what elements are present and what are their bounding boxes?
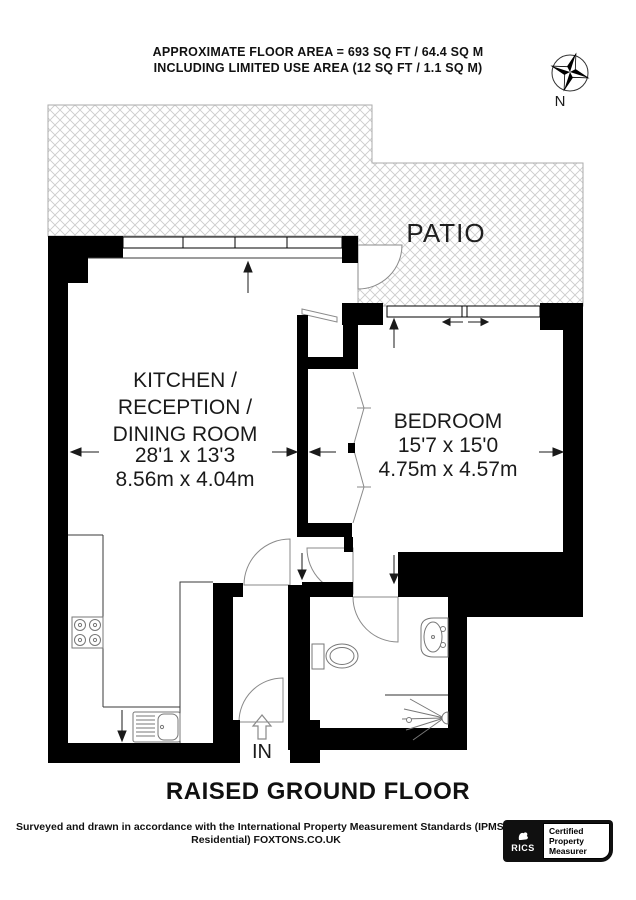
basin-tap <box>441 643 446 648</box>
bedroom-window <box>387 306 540 317</box>
dim-arrow-head <box>390 574 398 583</box>
patio-hatch <box>48 105 583 306</box>
footer-line1: Surveyed and drawn in accordance with th… <box>0 821 532 834</box>
kitchen-window <box>123 237 342 248</box>
bedroom-dims-metric: 4.75m x 4.57m <box>379 458 518 481</box>
rics-badge: RICS Certified Property Measurer <box>503 820 613 862</box>
wall-segment <box>297 315 308 537</box>
dim-arrow-head <box>553 448 563 456</box>
shower-drain <box>407 718 412 723</box>
rics-badge-left: RICS <box>503 820 543 862</box>
kitchen-label-line3: DINING ROOM <box>113 423 258 446</box>
basin-dot <box>432 636 435 639</box>
dim-arrow-head <box>71 448 81 456</box>
bifold-ticks <box>357 408 371 487</box>
wall-segment <box>563 310 583 552</box>
footer-disclaimer: Surveyed and drawn in accordance with th… <box>0 821 532 847</box>
floorplan-page: APPROXIMATE FLOOR AREA = 693 SQ FT / 64.… <box>0 0 636 900</box>
rics-org-label: RICS <box>511 843 535 853</box>
kitchen-dims-metric: 8.56m x 4.04m <box>116 468 255 491</box>
kitchen-fixtures <box>72 617 180 742</box>
toilet-cistern <box>312 644 324 669</box>
wall-segment <box>297 523 352 537</box>
basin-tap <box>441 627 446 632</box>
wall-segment <box>398 552 583 597</box>
rics-cert-line3: Measurer <box>549 846 609 856</box>
wall-segment <box>344 537 353 552</box>
bedroom-dims-imperial: 15'7 x 15'0 <box>398 434 498 457</box>
dim-arrow-head <box>310 448 320 456</box>
dim-arrow-head <box>298 570 306 579</box>
wall-segment <box>448 597 467 745</box>
kitchen-hall-door-arc <box>244 539 290 585</box>
slide-arrow-head <box>481 319 488 326</box>
floor-title: RAISED GROUND FLOOR <box>0 778 636 806</box>
wall-segment <box>465 597 583 617</box>
cabinet-outline <box>180 582 213 743</box>
wall-segment <box>213 583 233 743</box>
wall-segment <box>342 236 358 263</box>
dim-arrow-head <box>287 448 297 456</box>
toilet-bowl-inner <box>330 648 354 665</box>
sink-tap-dot <box>160 725 163 728</box>
dim-arrow-head <box>118 731 126 741</box>
hob-burner-dot <box>78 623 81 626</box>
entry-label: IN <box>252 741 272 763</box>
kitchen-label-line1: KITCHEN / <box>133 369 237 392</box>
dim-arrow-head <box>390 319 398 329</box>
hob-burner-dot <box>78 638 81 641</box>
bifold-door <box>348 372 371 523</box>
rics-lion-icon <box>516 829 531 842</box>
footer-line2: Residential) FOXTONS.CO.UK <box>0 834 532 847</box>
patio-label: PATIO <box>406 218 485 248</box>
wall-segment <box>48 743 233 763</box>
hob-burner-dot <box>93 623 96 626</box>
wall-segment <box>233 720 240 763</box>
shower-head <box>442 712 448 724</box>
hob-burner-dot <box>93 638 96 641</box>
bifold-track-mark <box>348 443 355 453</box>
rics-cert-line1: Certified <box>549 826 609 836</box>
room-labels: KITCHEN / RECEPTION / DINING ROOM 28'1 x… <box>113 369 518 491</box>
wall-segment <box>48 236 68 763</box>
slide-arrow-head <box>443 319 450 326</box>
rics-cert-line2: Property <box>549 836 609 846</box>
compass-north-label: N <box>555 93 566 110</box>
patio-area: PATIO <box>48 105 583 306</box>
dim-arrow-head <box>244 262 252 272</box>
compass: N <box>552 54 588 110</box>
bathroom-door-arc <box>353 597 398 642</box>
bedroom-label: BEDROOM <box>394 410 503 433</box>
wall-segment <box>290 720 320 763</box>
rics-cert-panel: Certified Property Measurer <box>543 823 610 859</box>
kitchen-dims-imperial: 28'1 x 13'3 <box>135 444 235 467</box>
kitchen-label-line2: RECEPTION / <box>118 396 252 419</box>
floorplan-drawing: PATIO <box>0 0 636 900</box>
